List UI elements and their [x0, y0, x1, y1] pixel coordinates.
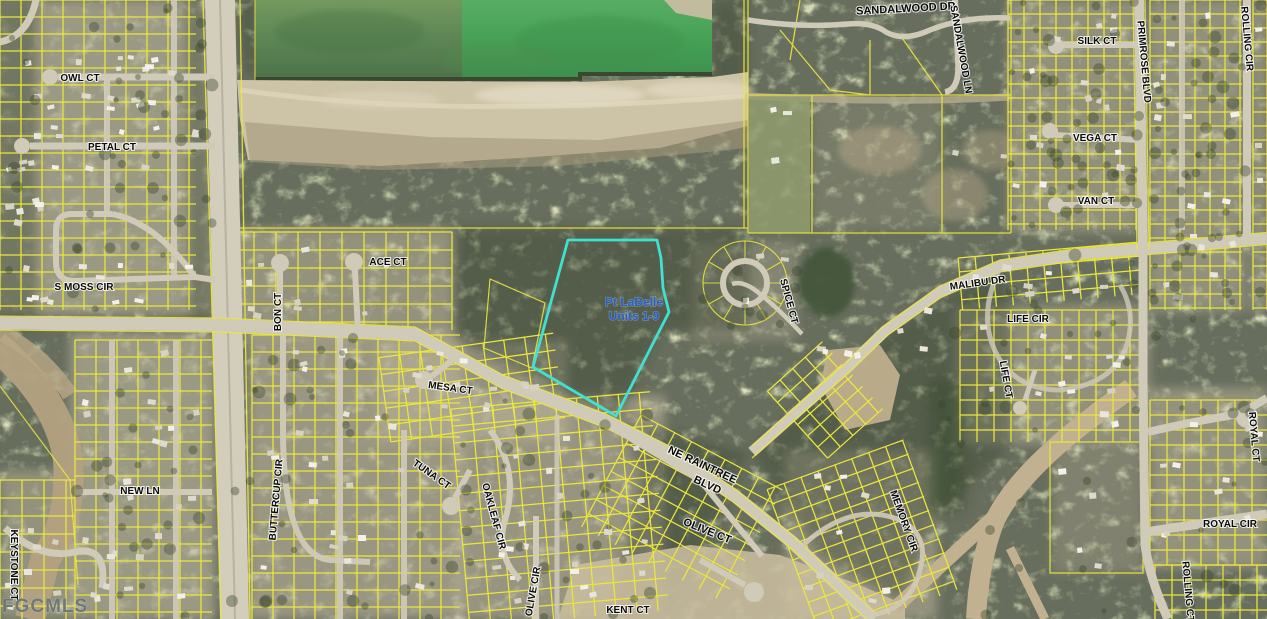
svg-text:VEGA CT: VEGA CT: [1073, 133, 1117, 144]
svg-text:KENT CT: KENT CT: [606, 605, 649, 616]
svg-text:FGCMLS: FGCMLS: [2, 596, 88, 617]
svg-text:ACE CT: ACE CT: [369, 257, 406, 268]
svg-text:VAN CT: VAN CT: [1078, 196, 1114, 207]
svg-text:NEW LN: NEW LN: [120, 486, 159, 497]
svg-text:S MOSS CIR: S MOSS CIR: [55, 282, 115, 293]
svg-text:OWL CT: OWL CT: [60, 73, 99, 84]
svg-text:ROYAL CIR: ROYAL CIR: [1203, 519, 1258, 530]
svg-text:KEYSTONE CT: KEYSTONE CT: [8, 530, 19, 601]
svg-text:Pt LaBelle: Pt LaBelle: [605, 295, 663, 309]
svg-text:Units 1-9: Units 1-9: [609, 309, 660, 323]
svg-text:BON CT: BON CT: [273, 293, 284, 331]
svg-text:LIFE CIR: LIFE CIR: [1007, 314, 1049, 325]
svg-text:PETAL CT: PETAL CT: [88, 142, 136, 153]
svg-text:SILK CT: SILK CT: [1078, 36, 1117, 47]
